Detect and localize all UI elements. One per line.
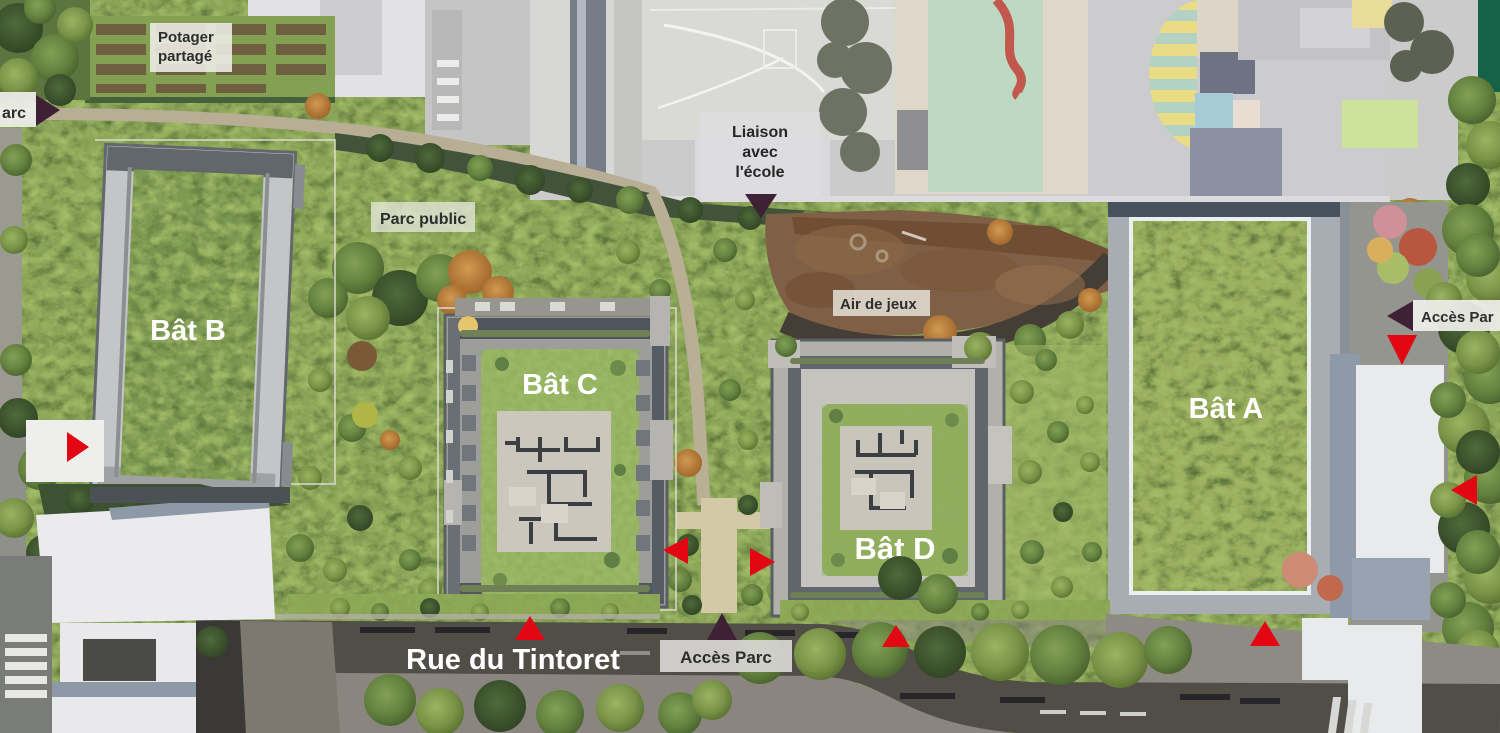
svg-text:Rue du Tintoret: Rue du Tintoret <box>406 644 620 676</box>
svg-text:Air de jeux: Air de jeux <box>840 296 917 313</box>
svg-text:arc: arc <box>2 105 26 122</box>
svg-text:Bât A: Bât A <box>1189 393 1264 425</box>
svg-text:avec: avec <box>742 144 778 161</box>
svg-text:Bât C: Bât C <box>522 369 598 401</box>
svg-text:Liaison: Liaison <box>732 124 788 141</box>
svg-text:Potager: Potager <box>158 29 214 46</box>
svg-text:Accès Par: Accès Par <box>1421 309 1494 326</box>
svg-text:Parc public: Parc public <box>380 211 466 228</box>
svg-text:Accès Parc: Accès Parc <box>680 648 772 667</box>
svg-text:l'école: l'école <box>735 164 784 181</box>
svg-text:partagé: partagé <box>158 48 212 65</box>
svg-text:Bât B: Bât B <box>150 315 226 347</box>
